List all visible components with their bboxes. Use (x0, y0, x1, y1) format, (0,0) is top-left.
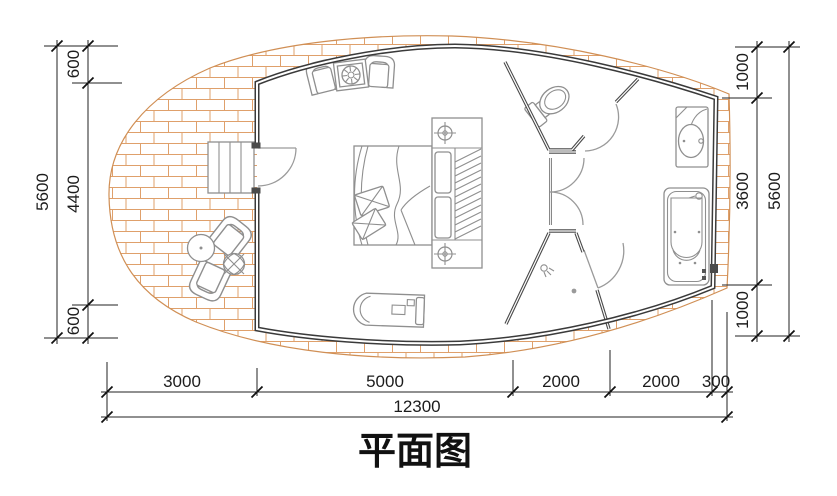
dim-bottom-seg-4: 2000 (642, 372, 680, 391)
floor-plan-drawing: 600 4400 600 5600 1000 3600 1000 5600 30… (0, 0, 837, 496)
dim-left-seg-mid: 4400 (64, 175, 83, 213)
dim-bottom-seg-2: 5000 (366, 372, 404, 391)
wash-basin-icon (676, 107, 708, 167)
dim-bottom-seg-3: 2000 (542, 372, 580, 391)
dim-left-total: 5600 (33, 173, 52, 211)
floor-drain-icon (572, 289, 577, 294)
entry-stairs-icon (208, 142, 254, 193)
dim-right-seg-mid: 3600 (733, 172, 752, 210)
floor-plan-page: 600 4400 600 5600 1000 3600 1000 5600 30… (0, 0, 837, 496)
wall-joint (710, 264, 718, 273)
door-jamb (252, 188, 261, 194)
potted-plant-icon (224, 254, 245, 275)
dim-right-total: 5600 (765, 172, 784, 210)
dim-left-seg-top: 600 (64, 50, 83, 78)
dim-right-seg-bot: 1000 (733, 291, 752, 329)
bathtub-icon (664, 188, 709, 285)
dim-bottom-total: 12300 (393, 397, 440, 416)
side-table-icon (333, 59, 368, 91)
dim-bottom-seg-1: 3000 (163, 372, 201, 391)
door-jamb (252, 143, 261, 149)
daybed-icon (353, 293, 425, 327)
dim-right-seg-top: 1000 (733, 53, 752, 91)
round-table-icon (188, 235, 215, 262)
dim-bottom-seg-5: 300 (702, 372, 730, 391)
dim-left-seg-bot: 600 (64, 307, 83, 335)
plan-title: 平面图 (358, 431, 472, 473)
